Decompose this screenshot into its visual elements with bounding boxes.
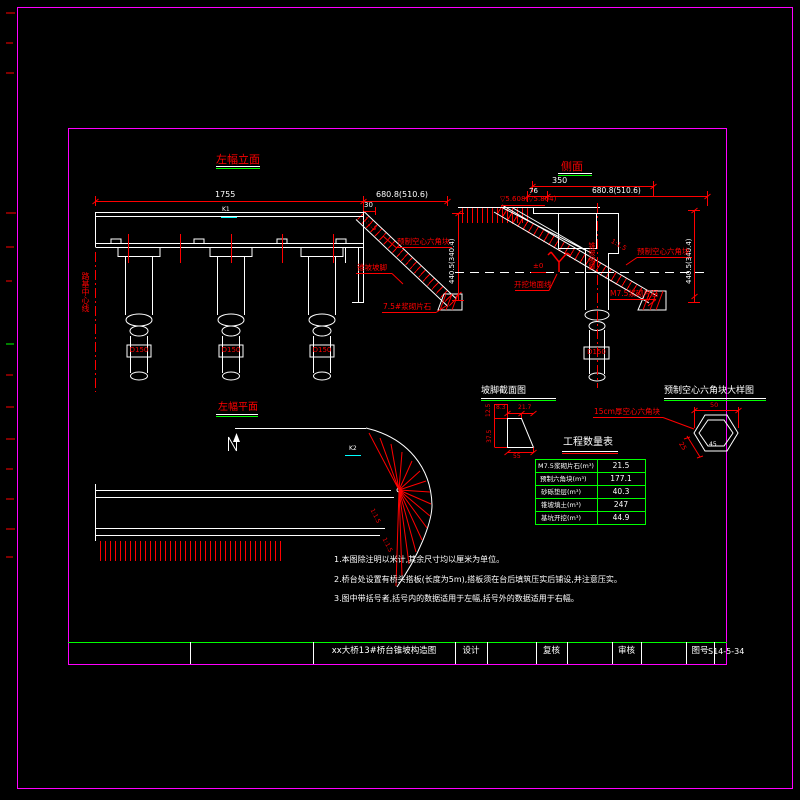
- dim-height-left-view: 440.5(340.4): [449, 238, 456, 284]
- qt-value-3: 40.3: [597, 488, 645, 496]
- dim-span: 1755: [215, 191, 235, 199]
- side-view-title: 侧面: [561, 161, 583, 172]
- pile-dia-2: D150: [219, 347, 243, 354]
- toe-dim-37-5: 37.5: [487, 430, 493, 443]
- qt-value-4: 247: [597, 501, 645, 509]
- slope-toe-label-left: 锥坡坡脚: [357, 264, 387, 272]
- zero-elevation-label: ±0: [533, 263, 543, 270]
- excavation-line-label: 开挖地面线: [514, 281, 552, 289]
- hex-dim-50: 50: [710, 402, 718, 409]
- chainage-k1: K1: [222, 207, 230, 213]
- qt-value-5: 44.9: [597, 514, 645, 522]
- drawing-sheet: 左幅立面 1755 680.8(510.6) 30 440.5(340.4) 路…: [0, 0, 800, 800]
- figure-no: S14-5-34: [708, 648, 758, 656]
- drawing-title: xx大桥13#桥台锥坡构造图: [313, 647, 455, 656]
- toe-dim-12-5: 12.5: [486, 404, 492, 417]
- qt-item-4: 锥坡填土(m³): [541, 502, 581, 509]
- left-elevation-linework: [93, 196, 465, 392]
- side-view-linework: [455, 181, 711, 388]
- dim-76: 76: [529, 188, 538, 195]
- hex-block-label: 15cm厚空心六角块: [594, 408, 660, 416]
- drawing-linework: [0, 0, 800, 800]
- edge-marks: [6, 13, 16, 557]
- qt-item-2: 预制六角块(m³): [540, 476, 587, 483]
- slope-toe-label-side: 锥坡坡脚: [588, 242, 595, 276]
- qt-item-3: 砂砾垫层(m³): [541, 489, 581, 496]
- rubble-label-side: M7.5浆砌片石: [610, 290, 658, 298]
- note-1: 1.本图除注明以米计,其余尺寸均以厘米为单位。: [334, 556, 504, 564]
- dim-height-side-view: 440.5(340.4): [686, 238, 693, 284]
- toe-dim-21-7: 21.7: [518, 405, 531, 411]
- pile-dia-1: D150: [127, 347, 151, 354]
- dim-right-left-view: 680.8(510.6): [376, 191, 428, 199]
- pile-dia-3: D150: [310, 347, 334, 354]
- qt-value-1: 21.5: [597, 462, 645, 470]
- rubble-label-left: 7.5#浆砌片石: [383, 303, 431, 311]
- note-3: 3.图中带括号者,括号内的数据适用于左幅,括号外的数据适用于右幅。: [334, 595, 579, 603]
- precast-block-label-left: 预制空心六角块: [397, 238, 450, 246]
- qt-item-5: 基坑开挖(m³): [541, 515, 581, 522]
- quantity-table-title: 工程数量表: [563, 438, 613, 448]
- qt-item-1: M7.5浆砌片石(m³): [538, 463, 594, 470]
- note-2: 2.桥台处设置有桥头搭板(长度为5m),搭板须在台后填筑压实后铺设,并注意压实。: [334, 576, 622, 584]
- toe-section-title: 坡脚截面图: [481, 387, 526, 396]
- dim-offset: 30: [364, 202, 373, 209]
- dim-right-side-view: 680.8(510.6): [592, 187, 641, 195]
- design-label: 设计: [455, 647, 487, 656]
- hex-detail-title: 预制空心六角块大样图: [664, 387, 754, 396]
- toe-dim-8-3: 8.3: [496, 405, 506, 411]
- qt-value-2: 177.1: [597, 475, 645, 483]
- toe-section-linework: [495, 404, 537, 455]
- check-label: 复核: [536, 647, 567, 656]
- pile-dia-side: D150: [585, 349, 608, 356]
- chainage-k2: K2: [349, 446, 357, 452]
- dim-350: 350: [552, 177, 567, 185]
- roadbed-centerline-label: 路基中心线: [81, 272, 89, 336]
- toe-dim-55: 55: [513, 454, 521, 460]
- plan-view-title: 左幅平面: [218, 403, 258, 413]
- precast-block-label-side: 预制空心六角块: [637, 248, 690, 256]
- left-elevation-title: 左幅立面: [216, 154, 260, 165]
- review-label: 审核: [612, 647, 641, 656]
- elevation-mark-label: ▽5.608(▽5.804): [500, 196, 556, 203]
- north-arrow-head: [233, 433, 240, 442]
- hex-dim-45: 45: [709, 442, 717, 448]
